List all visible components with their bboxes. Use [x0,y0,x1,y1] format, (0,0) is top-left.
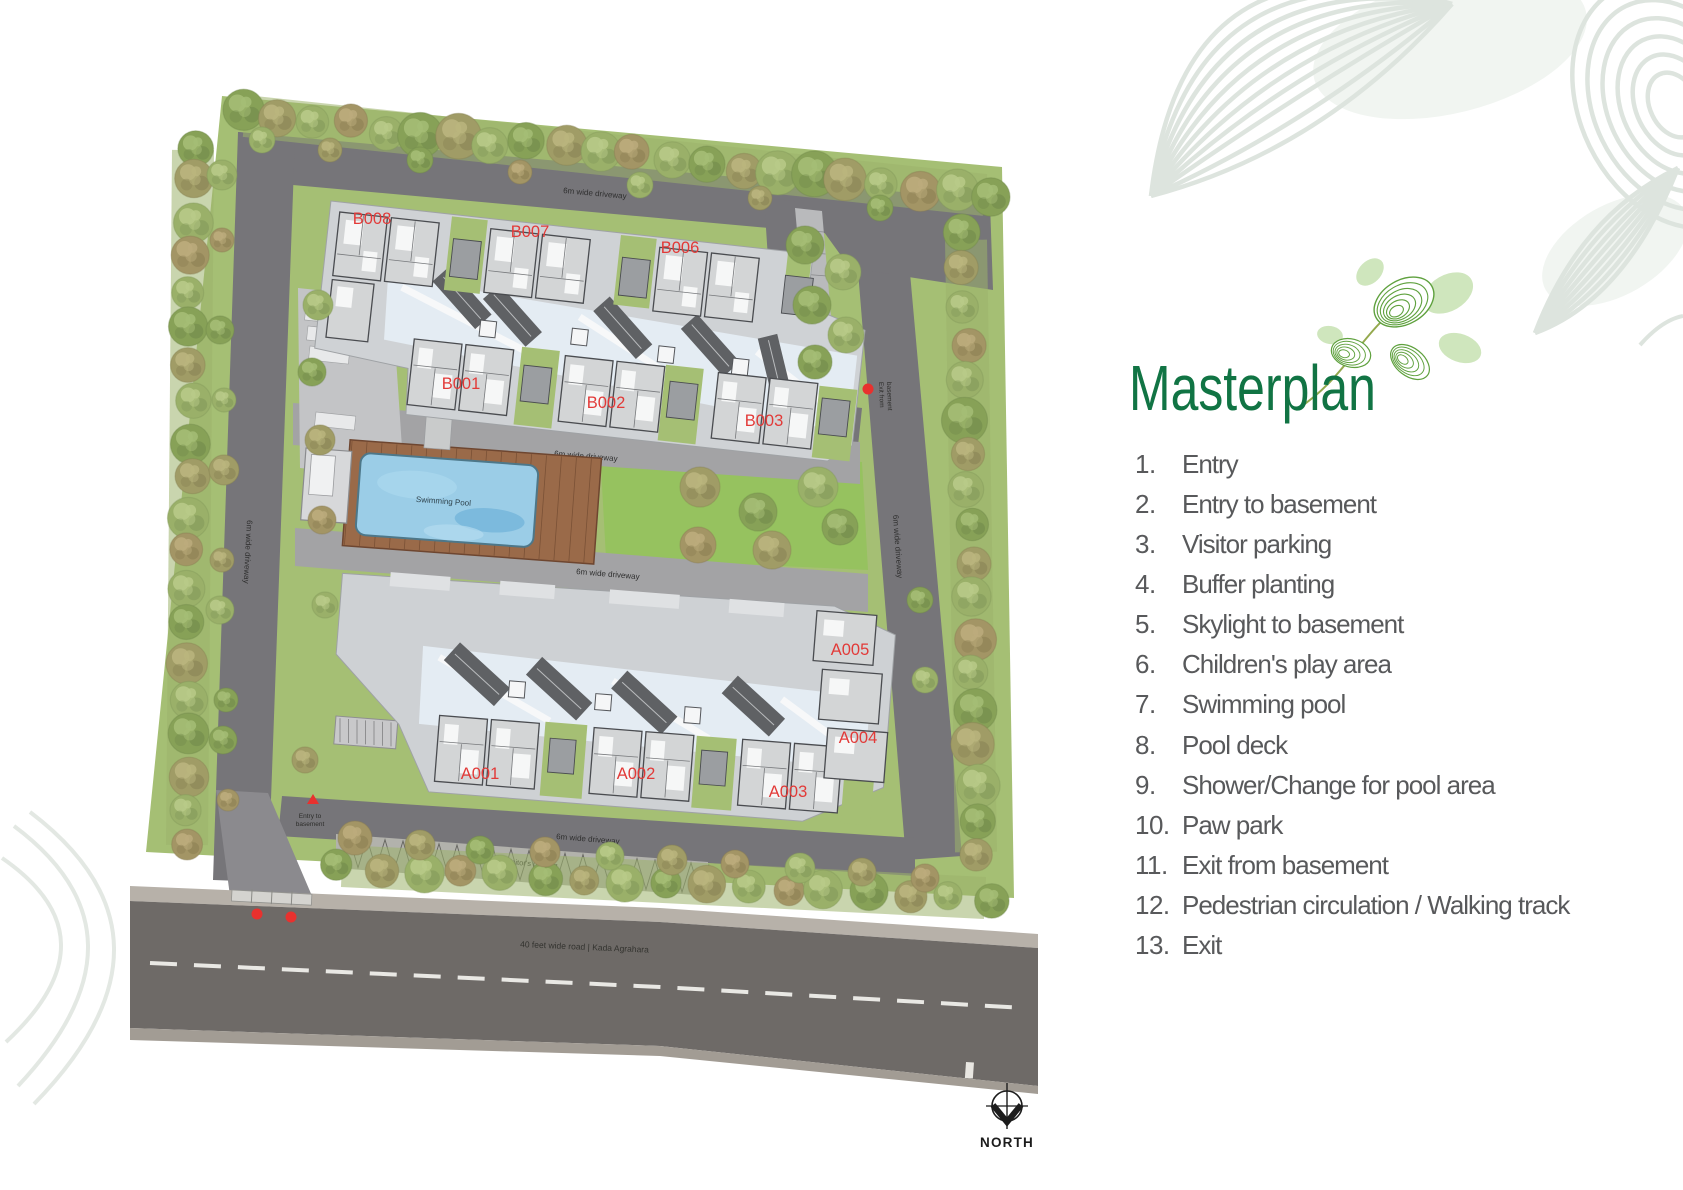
svg-text:B002: B002 [587,394,626,412]
svg-text:A003: A003 [769,783,808,801]
svg-text:A002: A002 [617,765,656,783]
svg-text:A005: A005 [831,641,870,659]
svg-text:A001: A001 [461,765,500,783]
svg-text:Exit from: Exit from [877,382,885,408]
svg-text:basement: basement [885,382,893,411]
svg-text:B007: B007 [511,223,550,241]
svg-text:B001: B001 [442,375,481,393]
svg-text:NORTH: NORTH [980,1135,1034,1150]
svg-text:B003: B003 [745,412,784,430]
svg-text:basement: basement [296,821,325,828]
svg-text:B008: B008 [353,210,392,228]
svg-text:A004: A004 [839,729,878,747]
svg-text:B006: B006 [661,239,700,257]
svg-text:Entry to: Entry to [299,813,322,820]
